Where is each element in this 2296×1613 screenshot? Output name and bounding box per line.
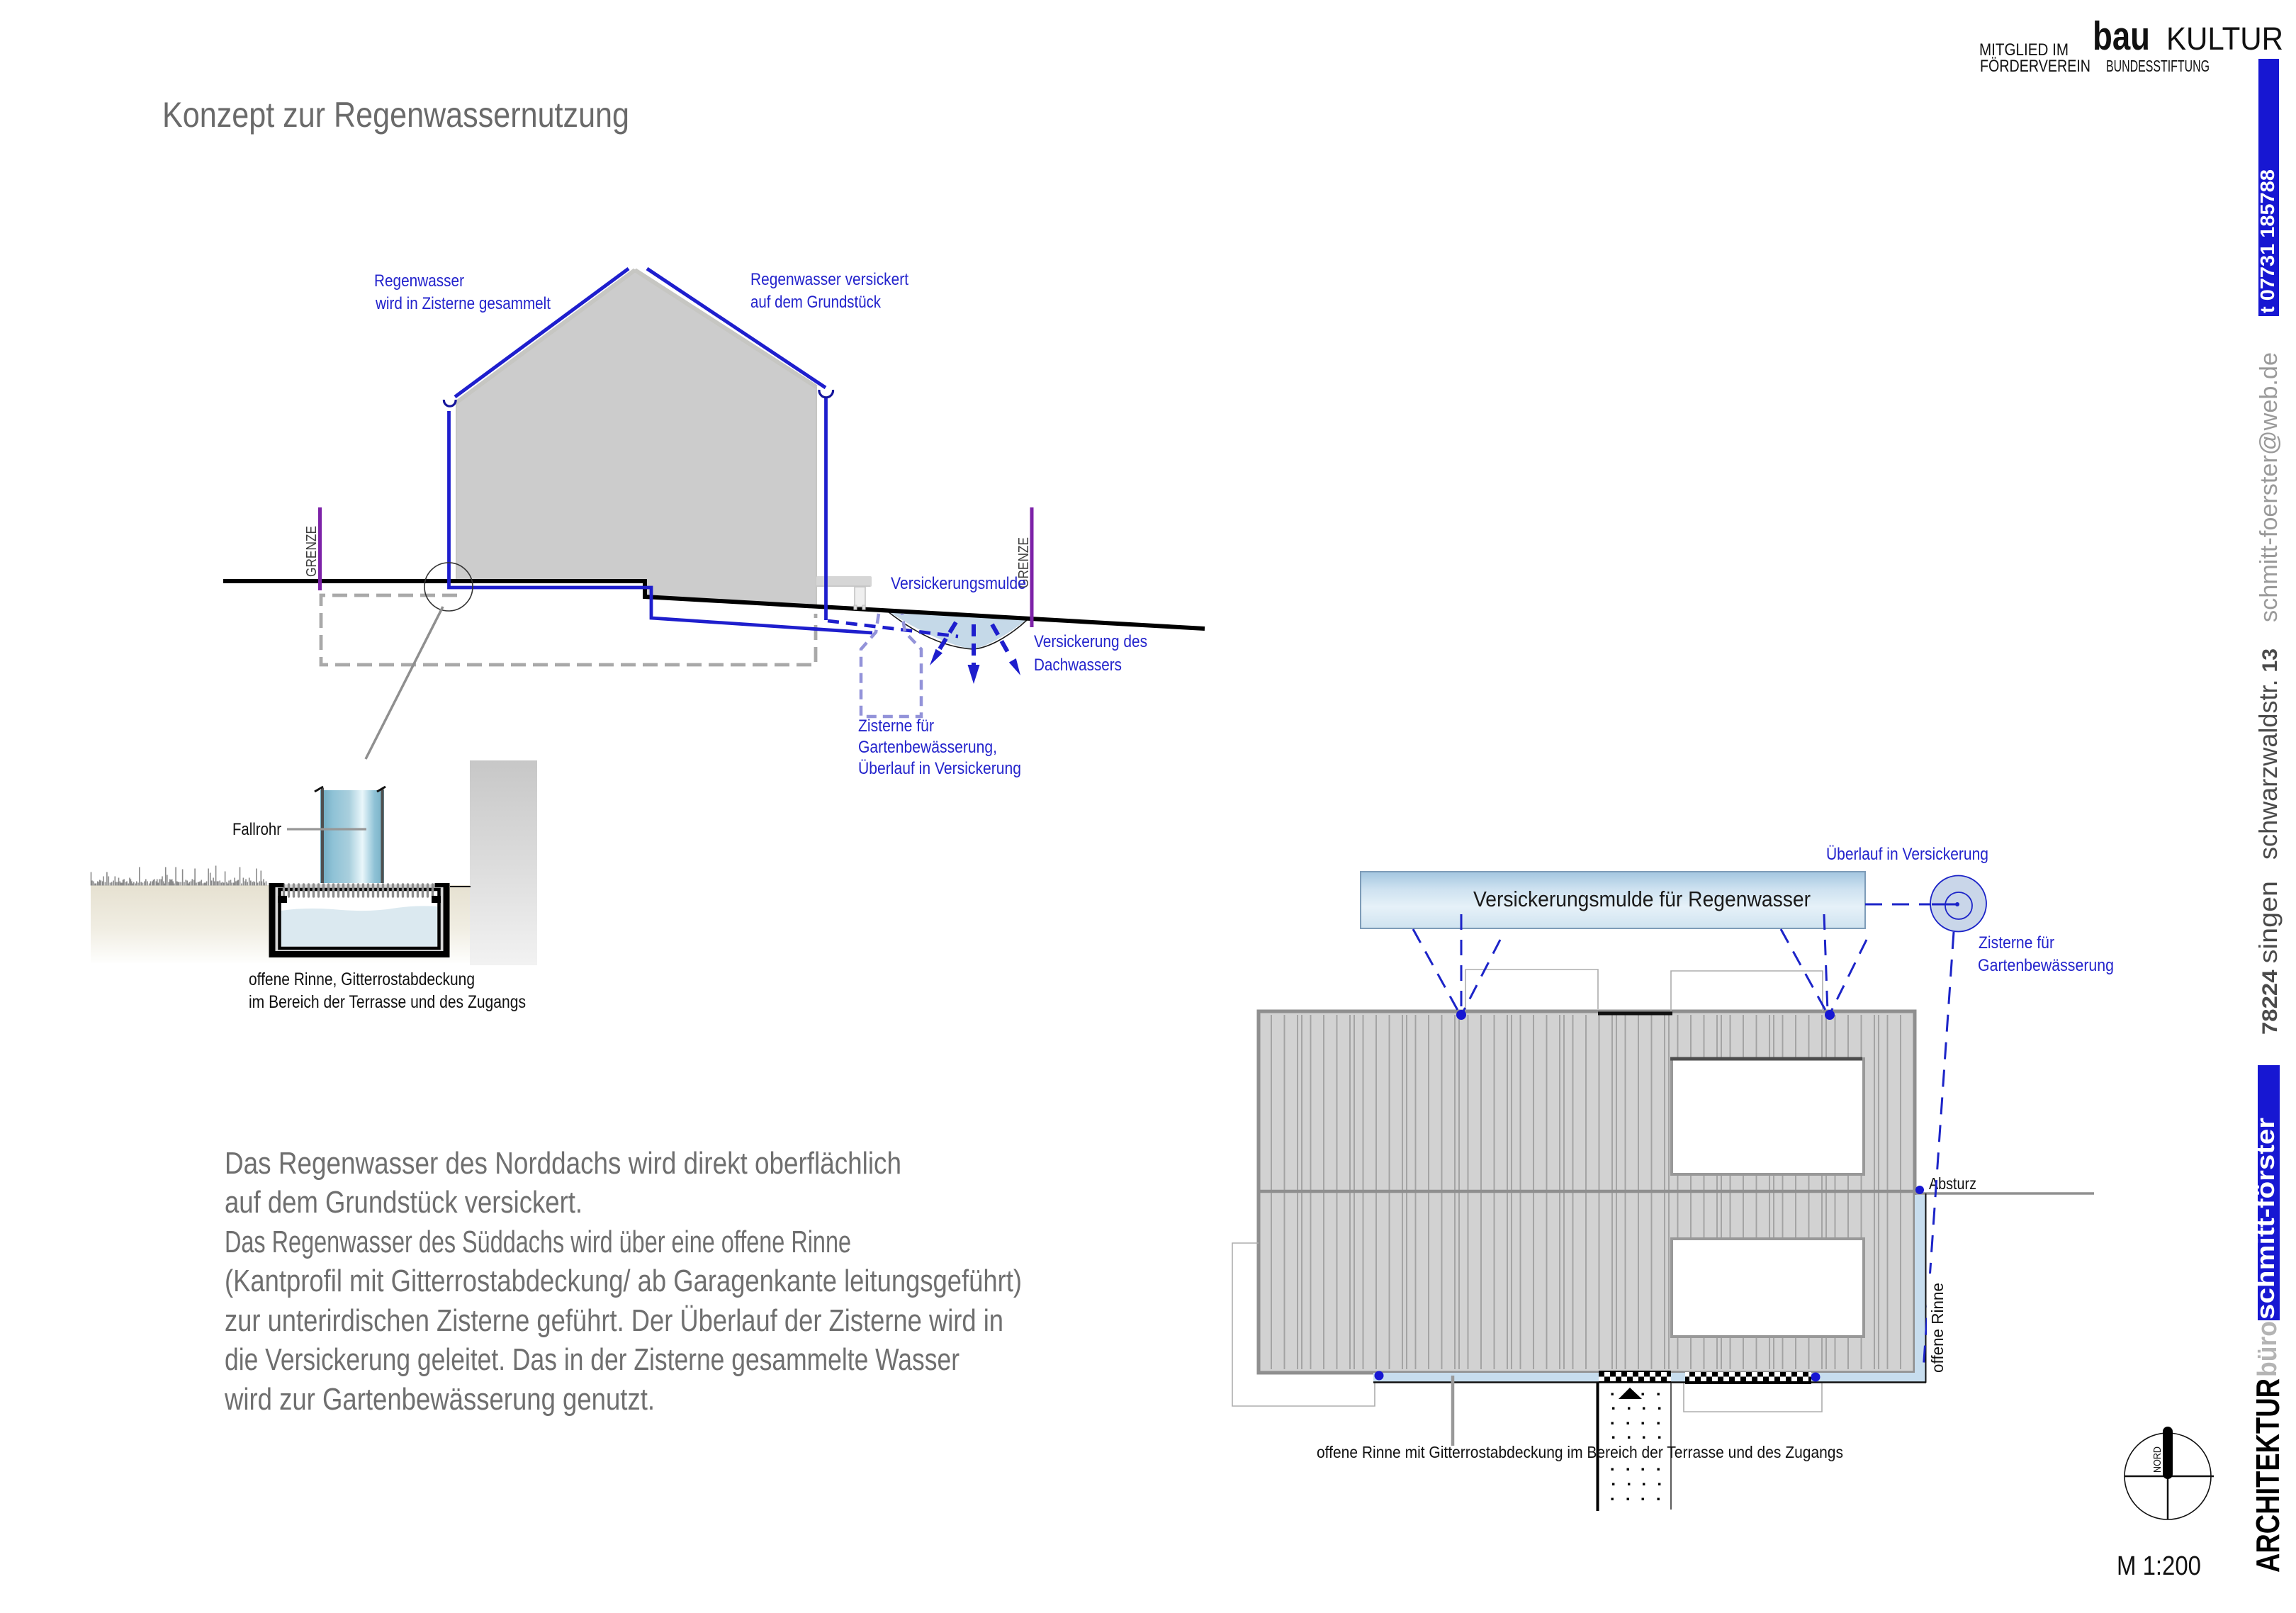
svg-text:Das Regenwasser des Norddachs: Das Regenwasser des Norddachs wird direk… <box>225 1146 901 1181</box>
svg-text:Regenwasser: Regenwasser <box>374 271 464 291</box>
svg-text:Versickerung des: Versickerung des <box>1034 632 1147 651</box>
svg-text:Fallrohr: Fallrohr <box>232 820 281 839</box>
svg-text:schmitt-förster: schmitt-förster <box>2251 1118 2280 1320</box>
svg-text:schwarzwaldstr. 13: schwarzwaldstr. 13 <box>2253 648 2283 860</box>
svg-text:offene Rinne, Gitterrostabdeck: offene Rinne, Gitterrostabdeckung <box>249 970 475 989</box>
svg-text:t 07731 185788: t 07731 185788 <box>2256 169 2278 313</box>
svg-text:Zisterne für: Zisterne für <box>858 716 934 736</box>
svg-text:NORD: NORD <box>2151 1446 2163 1473</box>
svg-text:wird in Zisterne gesammelt: wird in Zisterne gesammelt <box>375 294 551 313</box>
svg-text:Zisterne für: Zisterne für <box>1979 933 2054 952</box>
svg-text:Das Regenwasser des Süddachs w: Das Regenwasser des Süddachs wird über e… <box>225 1225 851 1259</box>
svg-text:offene Rinne mit Gitterrostabd: offene Rinne mit Gitterrostabdeckung im … <box>1317 1443 1843 1461</box>
svg-text:schmitt-foerster@web.de: schmitt-foerster@web.de <box>2256 352 2283 622</box>
svg-text:Regenwasser versickert: Regenwasser versickert <box>750 270 908 289</box>
svg-text:Gartenbewässerung: Gartenbewässerung <box>1978 956 2114 975</box>
svg-text:KULTUR: KULTUR <box>2166 21 2283 57</box>
svg-text:Konzept zur Regenwassernutzung: Konzept zur Regenwassernutzung <box>162 95 629 135</box>
svg-text:Überlauf in Versickerung: Überlauf in Versickerung <box>858 759 1021 778</box>
svg-text:M 1:200: M 1:200 <box>2117 1551 2201 1581</box>
svg-text:bau: bau <box>2093 13 2150 59</box>
svg-text:Überlauf in Versickerung: Überlauf in Versickerung <box>1826 845 1988 864</box>
svg-text:büro: büro <box>2253 1321 2283 1377</box>
svg-text:auf dem Grundstück versickert.: auf dem Grundstück versickert. <box>225 1185 583 1220</box>
svg-text:FÖRDERVEREIN: FÖRDERVEREIN <box>1980 57 2090 76</box>
svg-text:auf dem Grundstück: auf dem Grundstück <box>750 293 882 312</box>
svg-text:78224 singen: 78224 singen <box>2253 881 2283 1035</box>
svg-text:Gartenbewässerung,: Gartenbewässerung, <box>858 738 997 757</box>
svg-text:im Bereich der Terrasse und de: im Bereich der Terrasse und des Zugangs <box>249 992 526 1012</box>
svg-text:offene Rinne: offene Rinne <box>1928 1283 1947 1373</box>
svg-text:ARCHITEKTUR: ARCHITEKTUR <box>2249 1378 2286 1573</box>
svg-text:Versickerungsmulde: Versickerungsmulde <box>891 574 1026 593</box>
svg-text:GRENZE: GRENZE <box>304 526 320 577</box>
svg-text:BUNDESSTIFTUNG: BUNDESSTIFTUNG <box>2106 57 2210 75</box>
svg-text:Versickerungsmulde für Regenwa: Versickerungsmulde für Regenwasser <box>1473 887 1811 911</box>
svg-text:zur unterirdischen Zisterne ge: zur unterirdischen Zisterne geführt. Der… <box>225 1303 1003 1338</box>
svg-text:die Versickerung geleitet. Das: die Versickerung geleitet. Das in der Zi… <box>225 1342 960 1377</box>
svg-text:Dachwassers: Dachwassers <box>1034 656 1122 675</box>
svg-text:wird zur Gartenbewässerung gen: wird zur Gartenbewässerung genutzt. <box>224 1382 655 1417</box>
svg-text:(Kantprofil mit Gitterrostabde: (Kantprofil mit Gitterrostabdeckung/ ab … <box>225 1264 1022 1298</box>
